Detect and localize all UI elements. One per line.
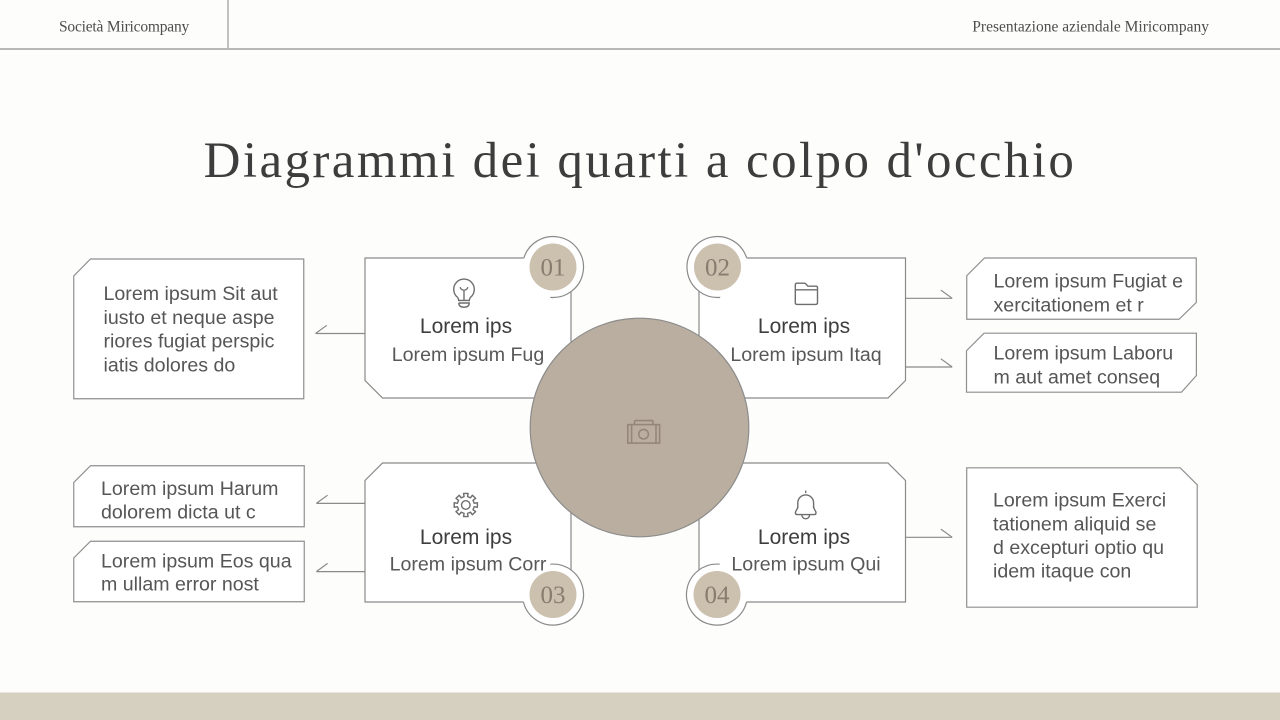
svg-text:d excepturi optio qu: d excepturi optio qu: [993, 537, 1164, 559]
svg-text:iusto et neque aspe: iusto et neque aspe: [104, 307, 275, 329]
svg-text:m ullam error nost: m ullam error nost: [101, 574, 259, 596]
svg-text:04: 04: [705, 582, 731, 609]
svg-text:Presentazione aziendale Mirico: Presentazione aziendale Miricompany: [972, 19, 1209, 36]
svg-text:Lorem ipsum Fug: Lorem ipsum Fug: [392, 344, 544, 366]
svg-text:Lorem ipsum Qui: Lorem ipsum Qui: [731, 554, 880, 576]
svg-text:Lorem ips: Lorem ips: [758, 526, 850, 549]
svg-text:Lorem ips: Lorem ips: [420, 315, 512, 338]
svg-text:idem itaque con: idem itaque con: [993, 561, 1131, 583]
svg-text:02: 02: [705, 255, 730, 282]
svg-text:Lorem ips: Lorem ips: [420, 526, 512, 549]
svg-text:Lorem ips: Lorem ips: [758, 315, 850, 338]
svg-text:Lorem ipsum Sit aut: Lorem ipsum Sit aut: [104, 283, 279, 305]
svg-text:Lorem ipsum Harum: Lorem ipsum Harum: [101, 478, 278, 500]
svg-text:riores fugiat perspic: riores fugiat perspic: [104, 331, 275, 353]
svg-text:dolorem dicta ut c: dolorem dicta ut c: [101, 502, 256, 524]
svg-text:iatis dolores do: iatis dolores do: [104, 354, 236, 376]
svg-text:Lorem ipsum Itaq: Lorem ipsum Itaq: [730, 344, 881, 366]
svg-text:Lorem ipsum Corr: Lorem ipsum Corr: [390, 554, 547, 576]
svg-text:xercitationem et r: xercitationem et r: [994, 294, 1145, 316]
svg-text:tationem aliquid se: tationem aliquid se: [993, 513, 1156, 535]
svg-text:01: 01: [541, 255, 566, 282]
svg-text:Diagrammi dei quarti a colpo d: Diagrammi dei quarti a colpo d'occhio: [204, 133, 1077, 189]
svg-text:m aut amet conseq: m aut amet conseq: [994, 366, 1161, 388]
svg-text:03: 03: [541, 582, 566, 609]
svg-text:Lorem ipsum Laboru: Lorem ipsum Laboru: [994, 343, 1174, 365]
svg-text:Società Miricompany: Società Miricompany: [59, 19, 190, 36]
svg-text:Lorem ipsum Eos qua: Lorem ipsum Eos qua: [101, 551, 292, 573]
svg-text:Lorem ipsum Exerci: Lorem ipsum Exerci: [993, 490, 1166, 512]
svg-text:Lorem ipsum Fugiat e: Lorem ipsum Fugiat e: [994, 271, 1184, 293]
